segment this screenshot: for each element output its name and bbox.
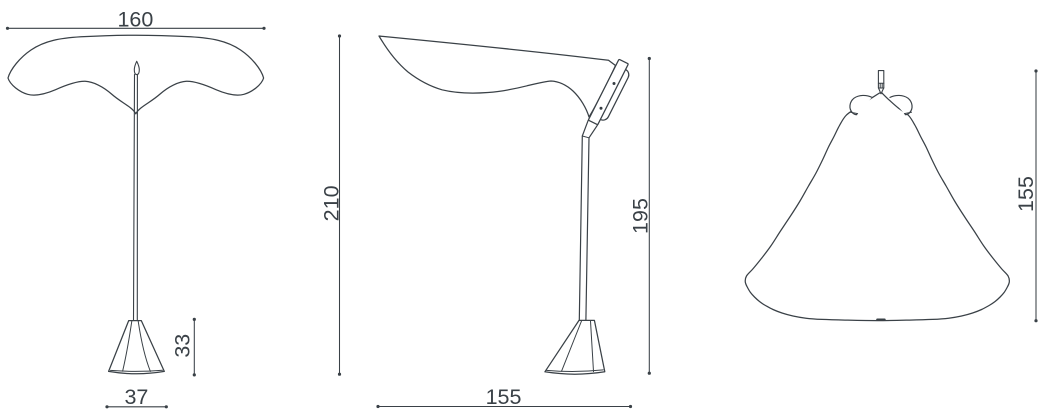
svg-text:155: 155 bbox=[1014, 176, 1038, 212]
svg-text:210: 210 bbox=[319, 185, 343, 221]
svg-text:160: 160 bbox=[117, 7, 153, 31]
svg-text:37: 37 bbox=[124, 385, 148, 409]
svg-text:195: 195 bbox=[628, 198, 652, 234]
svg-text:33: 33 bbox=[171, 334, 195, 358]
svg-text:155: 155 bbox=[486, 385, 522, 409]
